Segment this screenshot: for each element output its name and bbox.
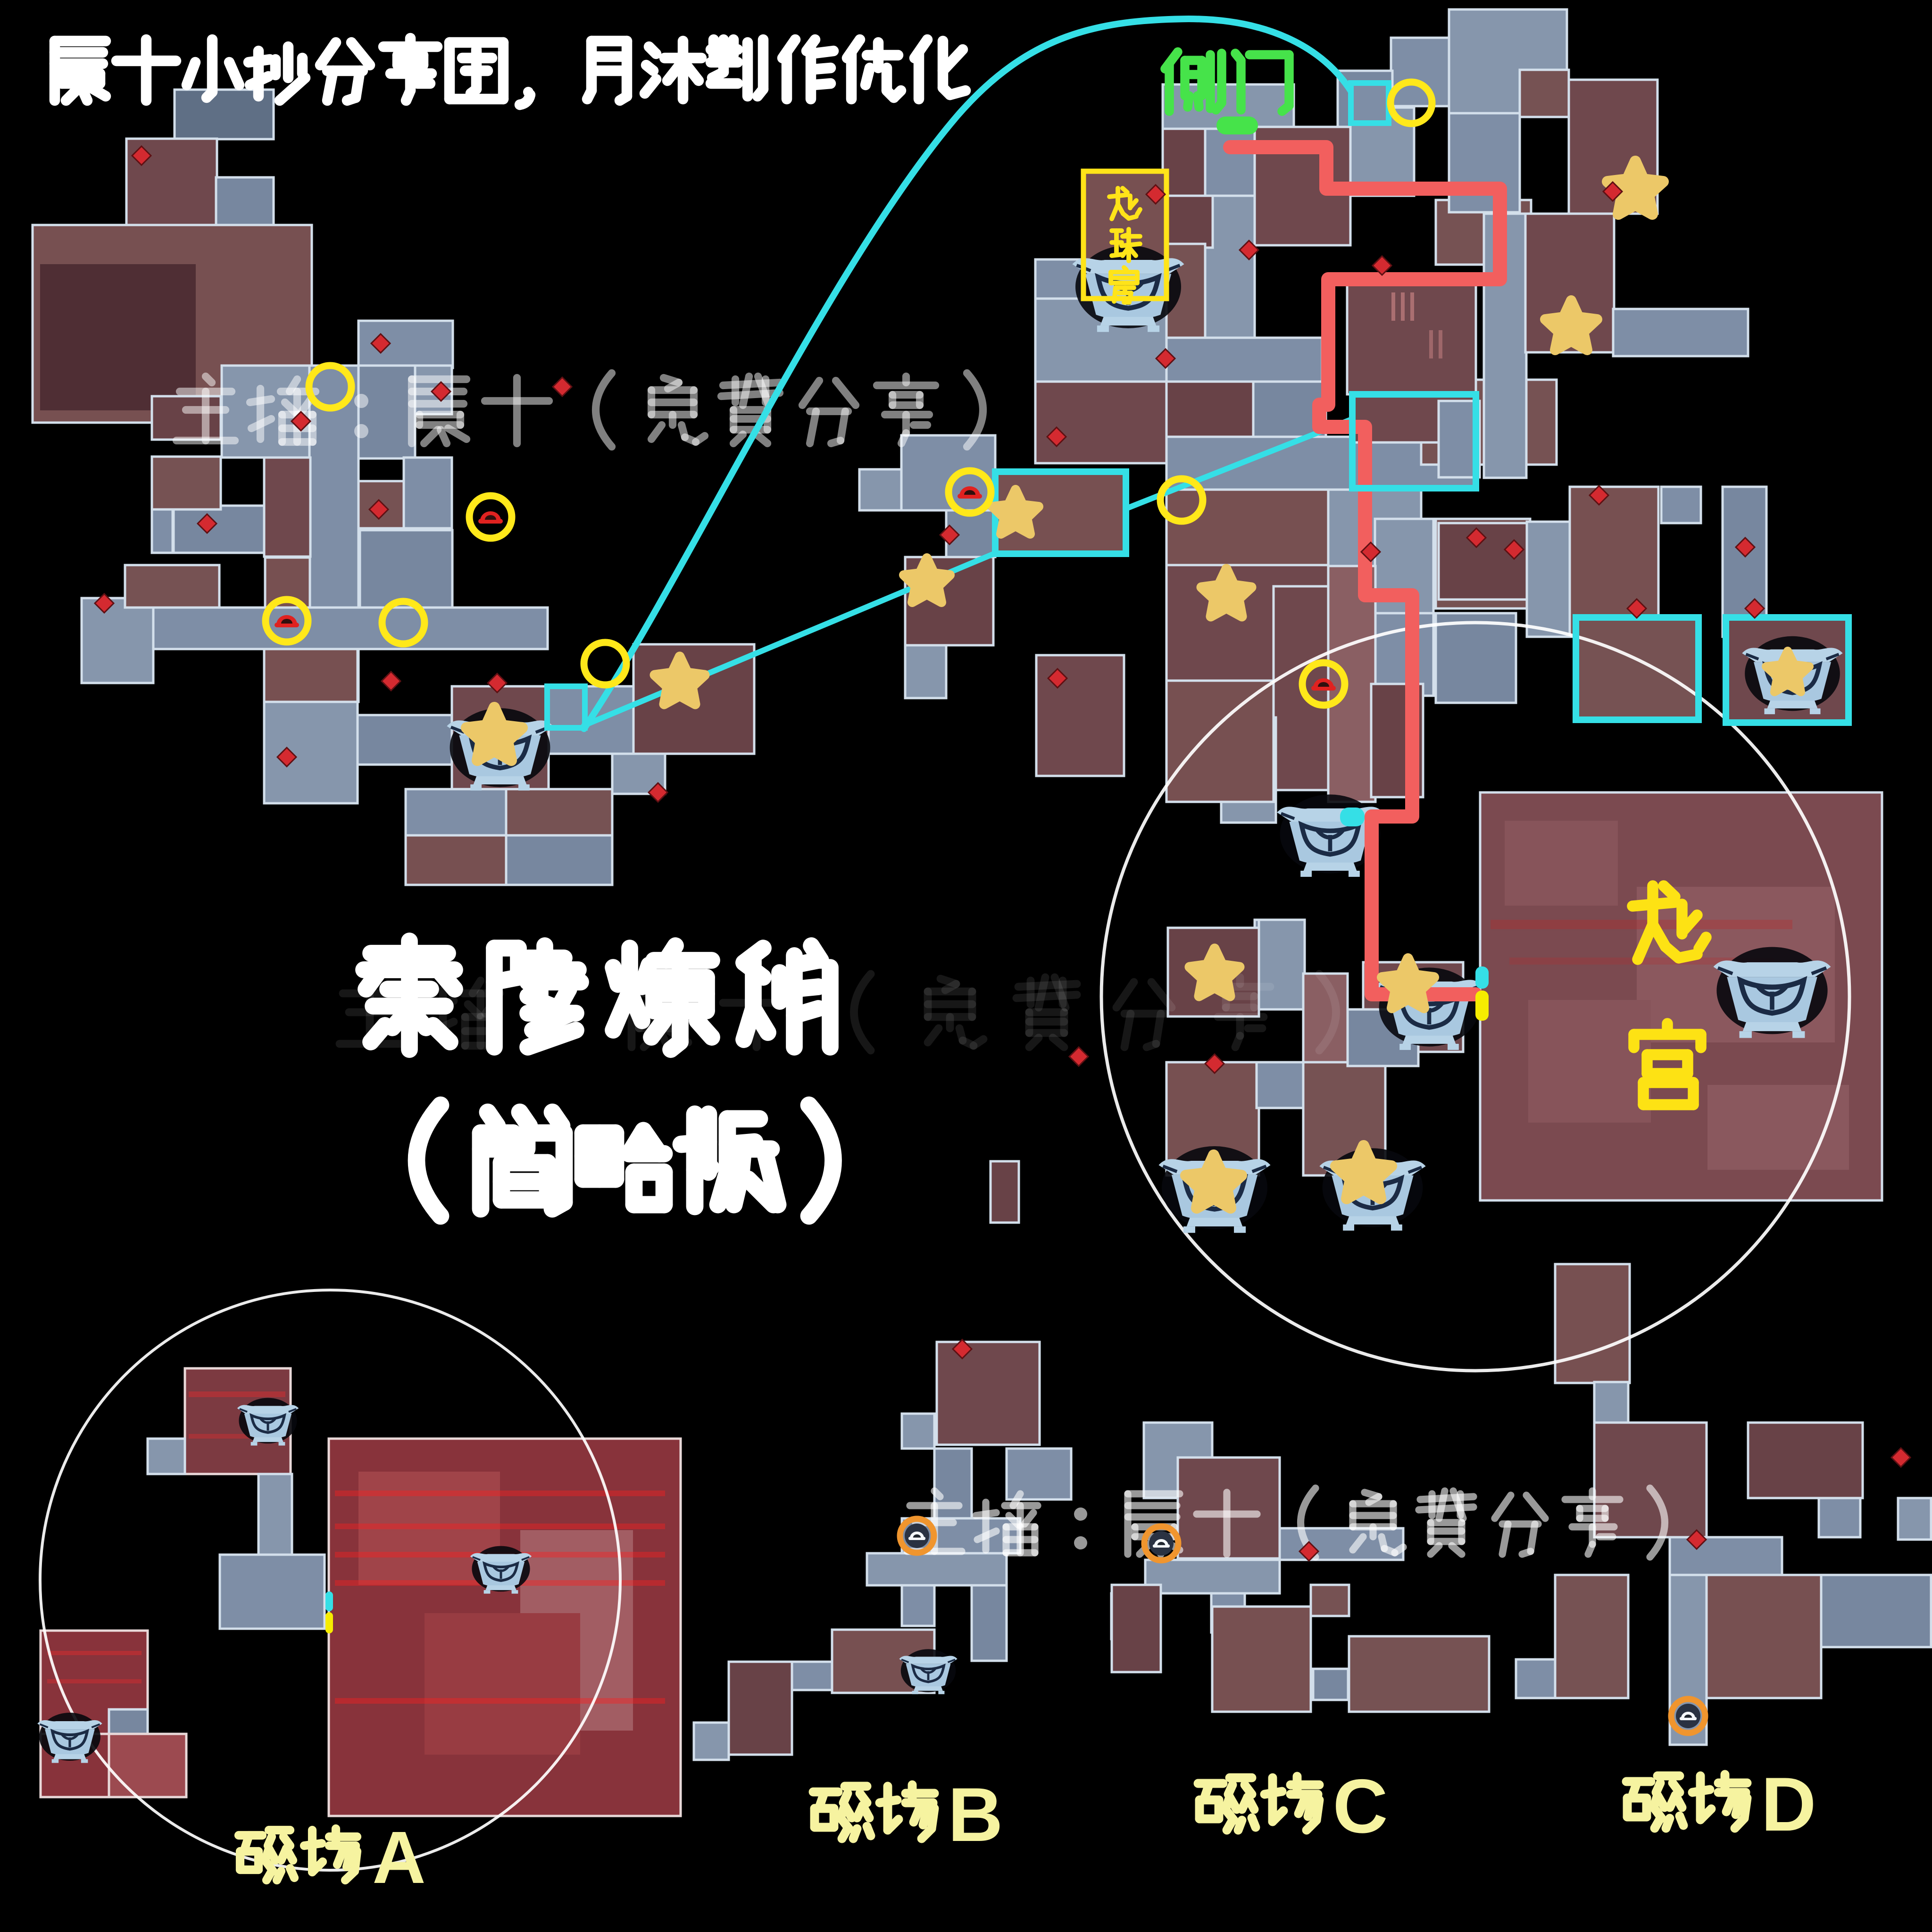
svg-text:D: D: [1761, 1762, 1816, 1847]
svg-text:C: C: [1333, 1764, 1388, 1849]
svg-text:A: A: [372, 1816, 425, 1899]
svg-text:B: B: [948, 1772, 1003, 1857]
